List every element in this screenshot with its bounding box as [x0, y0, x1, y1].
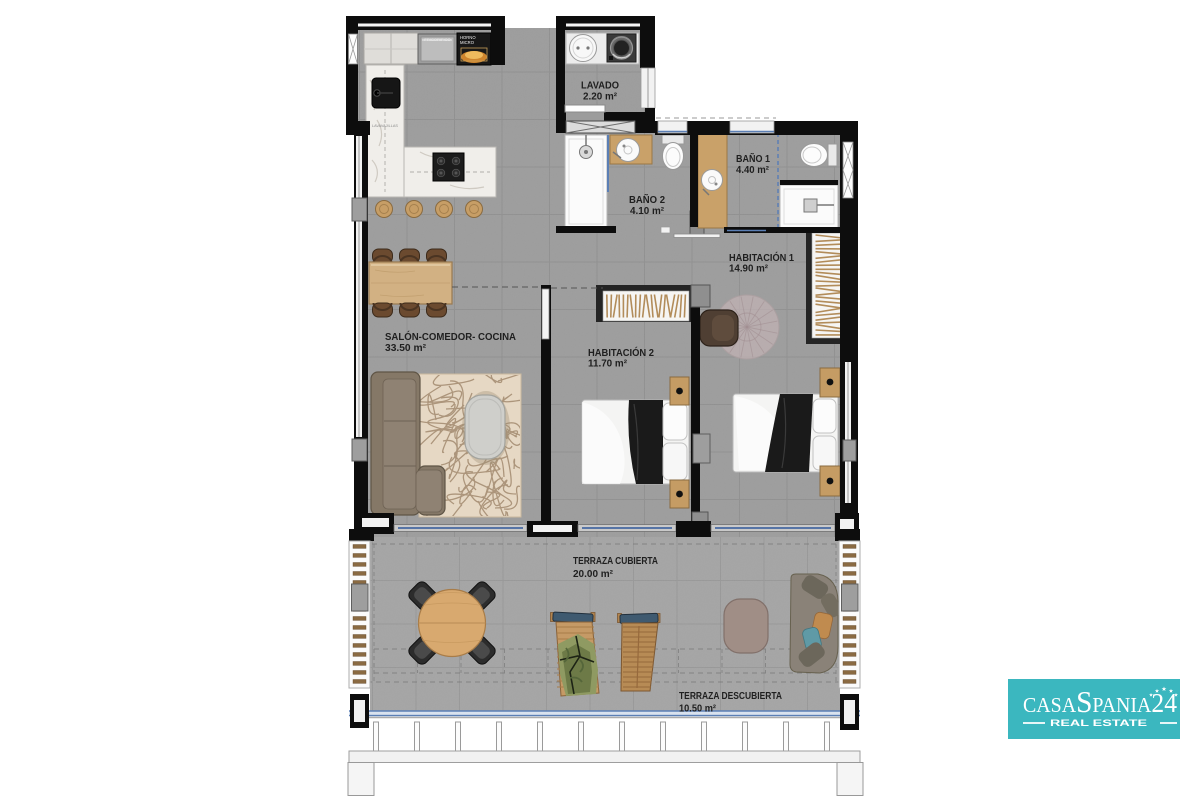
svg-text:MICRO: MICRO [460, 40, 475, 45]
svg-text:4.40 m²: 4.40 m² [736, 164, 769, 176]
svg-text:11.70 m²: 11.70 m² [588, 358, 627, 370]
svg-text:14.90 m²: 14.90 m² [729, 263, 768, 275]
svg-text:4.10 m²: 4.10 m² [630, 205, 664, 217]
svg-text:REAL ESTATE: REAL ESTATE [1050, 718, 1147, 728]
svg-text:2.20 m²: 2.20 m² [583, 91, 617, 103]
svg-text:20.00 m²: 20.00 m² [573, 568, 613, 580]
svg-text:TERRAZA DESCUBIERTA: TERRAZA DESCUBIERTA [679, 690, 782, 702]
svg-text:10.50 m²: 10.50 m² [679, 703, 716, 715]
svg-text:33.50 m²: 33.50 m² [385, 342, 426, 354]
svg-text:FRIGORIFICO: FRIGORIFICO [424, 37, 450, 42]
svg-text:LAVAVAJILLAS: LAVAVAJILLAS [372, 124, 398, 128]
svg-text:TERRAZA CUBIERTA: TERRAZA CUBIERTA [573, 555, 658, 567]
